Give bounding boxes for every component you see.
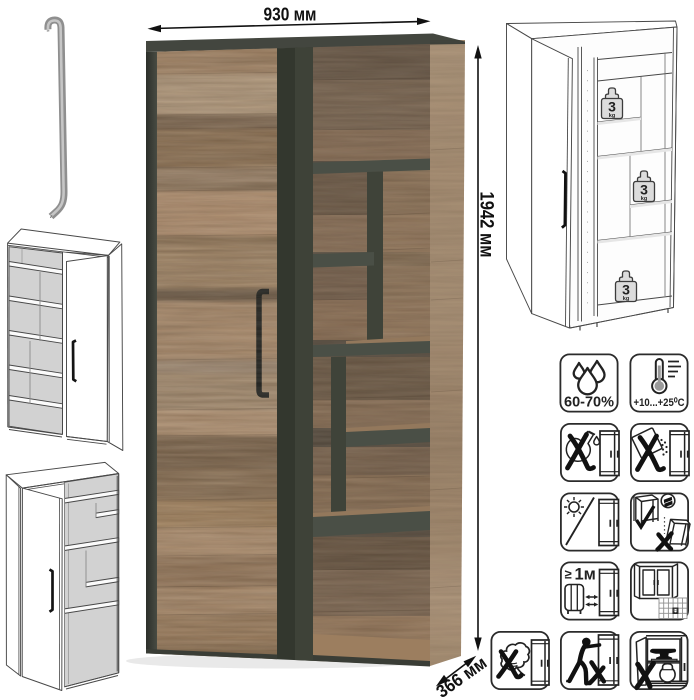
svg-text:21: 21 xyxy=(673,609,679,615)
svg-text:kg: kg xyxy=(641,196,647,202)
svg-text:1м: 1м xyxy=(575,566,596,584)
svg-text:kg: kg xyxy=(609,113,615,119)
svg-text:1942 мм: 1942 мм xyxy=(476,192,498,258)
svg-text:60-70%: 60-70% xyxy=(564,395,614,411)
svg-text:≥: ≥ xyxy=(565,567,572,582)
svg-text:+10...+25⁰С: +10...+25⁰С xyxy=(634,397,685,409)
svg-text:930 мм: 930 мм xyxy=(264,4,317,25)
svg-text:kg: kg xyxy=(623,296,629,302)
